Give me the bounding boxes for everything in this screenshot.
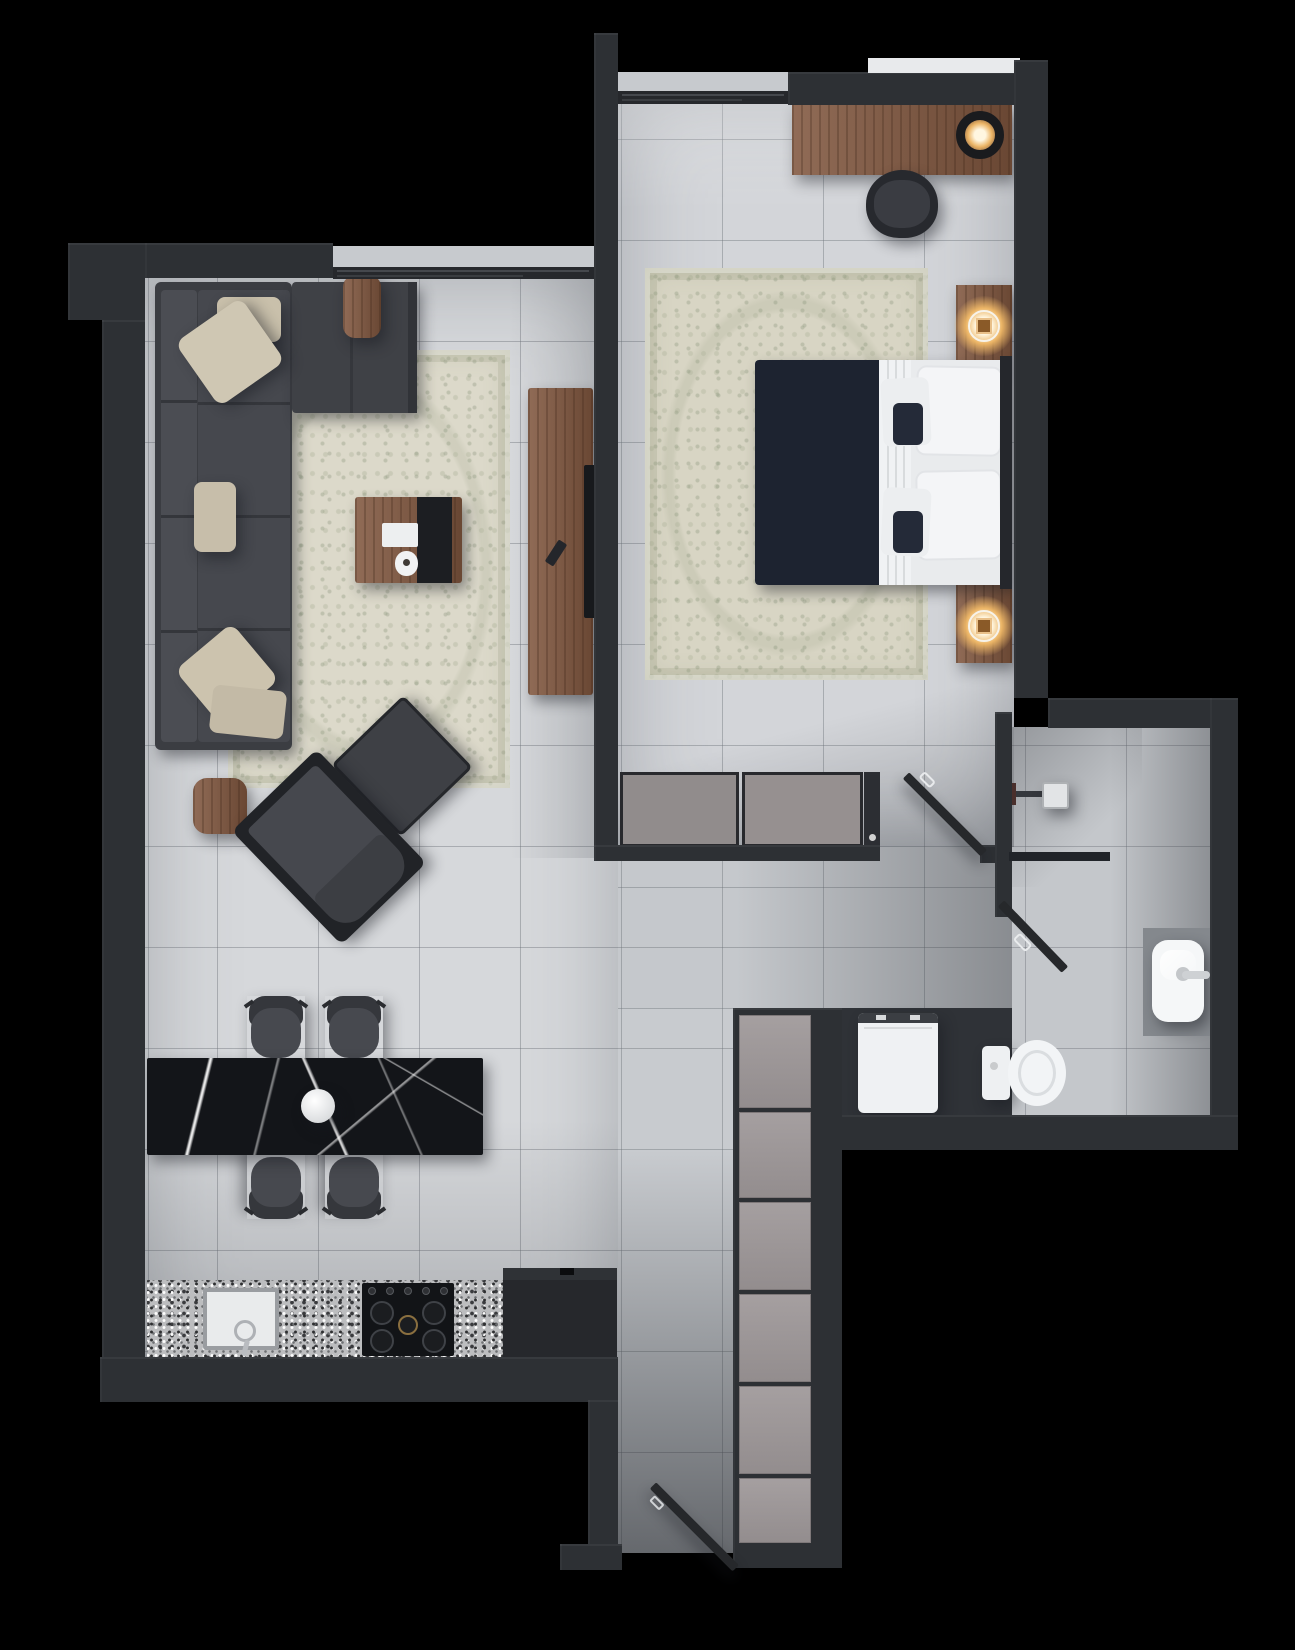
credenza-knob	[869, 834, 876, 841]
toilet-flush-knob	[990, 1062, 998, 1070]
stove-knob	[440, 1287, 448, 1295]
faucet-ring	[234, 1320, 256, 1342]
sofa-back-seam	[161, 630, 197, 633]
window-track	[622, 94, 784, 96]
shadow-entry	[618, 1150, 733, 1553]
bed-pillow-accent	[893, 403, 923, 445]
living-window-sill	[333, 246, 594, 267]
island-bowl	[301, 1089, 335, 1123]
window-ledge	[868, 58, 1020, 73]
wall-divider	[594, 33, 618, 857]
dining-chair	[247, 996, 305, 1060]
desk-lamp	[956, 111, 1004, 159]
coffee-table-sculpture-dot	[403, 559, 410, 566]
stove-knob	[386, 1287, 394, 1295]
apartment-floor-plan	[0, 0, 1295, 1650]
lamp-shade	[976, 618, 992, 634]
bedroom-window-frame	[618, 91, 788, 104]
desk-lamp-ring	[956, 111, 1004, 159]
bedroom-window-sill	[618, 72, 788, 91]
wardrobe-frame	[733, 1008, 842, 1568]
chair-seat	[329, 1157, 379, 1207]
side-table-arm	[343, 275, 381, 338]
stove-burner-center	[398, 1315, 418, 1335]
wardrobe-cell	[739, 1294, 811, 1382]
wall-bathroom-right	[1210, 698, 1238, 1150]
shadow-shower	[1012, 727, 1142, 887]
credenza-panel	[620, 772, 739, 847]
desk-chair	[866, 170, 938, 238]
coffee-table-runner	[417, 497, 452, 583]
wall-left	[102, 320, 145, 1357]
washer-clip	[876, 1015, 886, 1020]
washer-rim	[858, 1013, 938, 1023]
wall-living-top	[145, 243, 333, 278]
dining-chair	[325, 996, 383, 1060]
wall-bathroom-left-stub	[995, 712, 1012, 917]
washer	[858, 1013, 938, 1113]
shadow-corridor	[618, 847, 1012, 1008]
chaise-arm	[408, 282, 417, 413]
bath-faucet-bar	[1182, 971, 1210, 979]
toilet-bowl	[1008, 1040, 1066, 1106]
toilet-tank	[982, 1046, 1010, 1100]
window-track	[337, 275, 523, 277]
stove-knob	[404, 1287, 412, 1295]
shower-head	[1042, 782, 1069, 809]
sofa-seat-seam	[198, 628, 290, 631]
throw-pillow	[194, 482, 236, 552]
stove-burner	[370, 1301, 394, 1325]
stove-burner	[422, 1329, 446, 1353]
window-track	[622, 99, 742, 101]
bed-headboard	[1000, 356, 1012, 589]
wardrobe-cell	[739, 1386, 811, 1474]
chair-seat	[329, 1008, 379, 1058]
dining-chair	[247, 1155, 305, 1219]
throw-pillow	[209, 684, 288, 739]
wardrobe-cell	[739, 1015, 811, 1108]
washer-clip	[910, 1015, 920, 1020]
credenza-end-cap	[864, 772, 880, 847]
chair-seat	[251, 1157, 301, 1207]
kitchen-sink	[203, 1288, 279, 1350]
stove-burner	[422, 1301, 446, 1325]
washer-line	[864, 1027, 932, 1029]
coffee-table-tray	[382, 523, 418, 547]
lamp-shade	[976, 318, 992, 334]
bed-pillow-accent	[893, 511, 923, 553]
window-track	[337, 270, 589, 272]
stove-burner	[370, 1329, 394, 1353]
living-window-frame	[333, 267, 594, 279]
wall-entry-corner	[560, 1544, 622, 1570]
toilet-seat-ring	[1018, 1050, 1056, 1096]
wall-bathroom-bottom	[810, 1115, 1238, 1150]
wardrobe-cell	[739, 1202, 811, 1290]
desk-chair-cushion	[874, 180, 930, 228]
sofa-seat-seam	[198, 402, 290, 405]
stove-knob	[422, 1287, 430, 1295]
kitchen-tall-cabinet	[503, 1268, 617, 1357]
wall-bedroom-bottom	[594, 845, 880, 861]
chair-seat	[251, 1008, 301, 1058]
stove-cooktop	[362, 1283, 454, 1356]
wall-bedroom-top	[788, 72, 1014, 105]
nightstand-lamp	[954, 596, 1014, 656]
sofa-back-seam	[161, 515, 197, 518]
bath-sink-basin	[1152, 940, 1204, 1022]
stove-knob	[368, 1287, 376, 1295]
wall-top-left-corner	[68, 243, 145, 320]
coffee-table	[355, 497, 462, 583]
sofa-back-seam	[161, 400, 197, 403]
wardrobe-cell	[739, 1112, 811, 1198]
shower-glass-panel	[1009, 852, 1110, 861]
credenza-panel	[742, 772, 863, 847]
wardrobe-cell	[739, 1478, 811, 1543]
bed-duvet	[755, 360, 879, 585]
cabinet-handle-notch	[560, 1268, 574, 1275]
nightstand-lamp	[954, 296, 1014, 356]
wall-bedroom-right	[1014, 60, 1048, 698]
wall-kitchen-bottom	[100, 1357, 618, 1402]
dining-chair	[325, 1155, 383, 1219]
